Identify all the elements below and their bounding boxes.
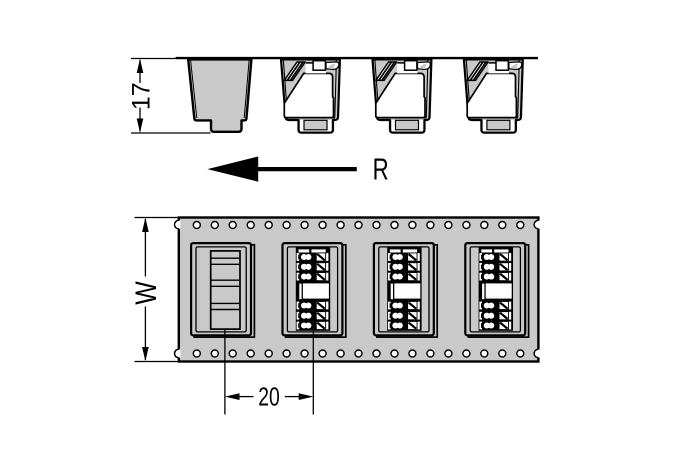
svg-text:17: 17 <box>128 82 156 110</box>
svg-text:W: W <box>130 281 163 305</box>
svg-text:R: R <box>373 152 389 186</box>
svg-text:20: 20 <box>258 384 280 412</box>
